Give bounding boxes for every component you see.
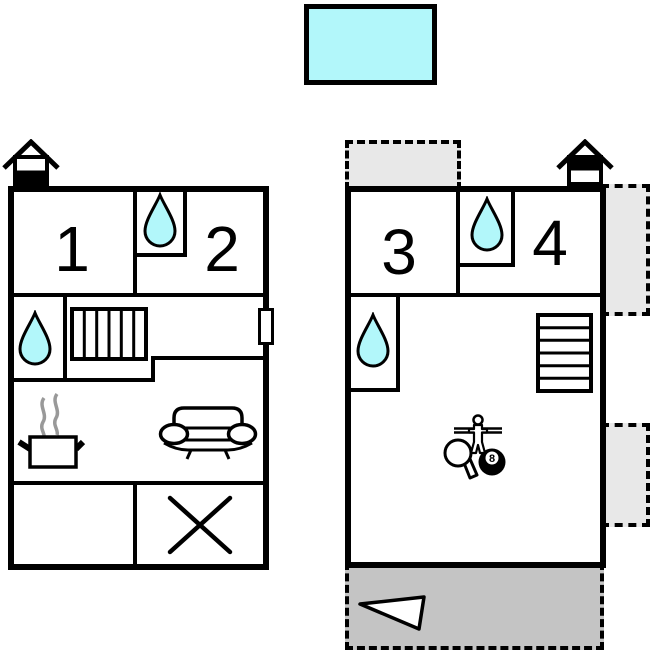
- wall: [133, 186, 137, 297]
- wall: [183, 186, 187, 257]
- wall: [456, 263, 515, 267]
- room-1-label: 1: [54, 217, 90, 281]
- floorplan-canvas: 1 2: [0, 0, 654, 652]
- billiard-ball-icon: 8: [479, 449, 506, 476]
- upper-floor-marker-icon: [556, 139, 614, 187]
- wall: [511, 186, 515, 267]
- wall: [133, 481, 137, 568]
- staircase-icon: [70, 307, 148, 361]
- staircase-icon: [536, 313, 593, 393]
- wall: [151, 356, 155, 382]
- cross-icon: [165, 493, 235, 557]
- water-drop-icon: [17, 310, 53, 367]
- room-2-label: 2: [204, 217, 240, 281]
- water-drop-icon: [355, 312, 391, 369]
- wall: [345, 388, 400, 392]
- game-area-icons: 8: [440, 412, 516, 484]
- sofa-icon: [158, 402, 258, 460]
- entrance-door: [258, 308, 274, 345]
- water-drop-icon: [469, 196, 505, 253]
- wall: [133, 253, 187, 257]
- swimming-pool: [304, 4, 437, 85]
- balcony-terrace-right-upper: [601, 184, 650, 316]
- wall: [8, 378, 155, 382]
- wall: [345, 293, 606, 297]
- room-4-label: 4: [532, 211, 568, 275]
- ground-floor-marker-icon: [2, 139, 60, 187]
- wall: [8, 293, 269, 297]
- wall: [456, 186, 460, 297]
- billiard-ball-number: 8: [489, 453, 495, 465]
- water-drop-icon: [142, 192, 178, 249]
- wall: [151, 356, 269, 360]
- balcony-terrace-top-left: [345, 140, 461, 190]
- terrace-triangle-icon: [352, 588, 432, 634]
- balcony-terrace-right-lower: [601, 423, 650, 527]
- wall: [63, 293, 67, 382]
- cooking-pot-icon: [16, 392, 86, 472]
- room-3-label: 3: [381, 220, 417, 284]
- wall: [8, 481, 269, 485]
- wall: [396, 293, 400, 392]
